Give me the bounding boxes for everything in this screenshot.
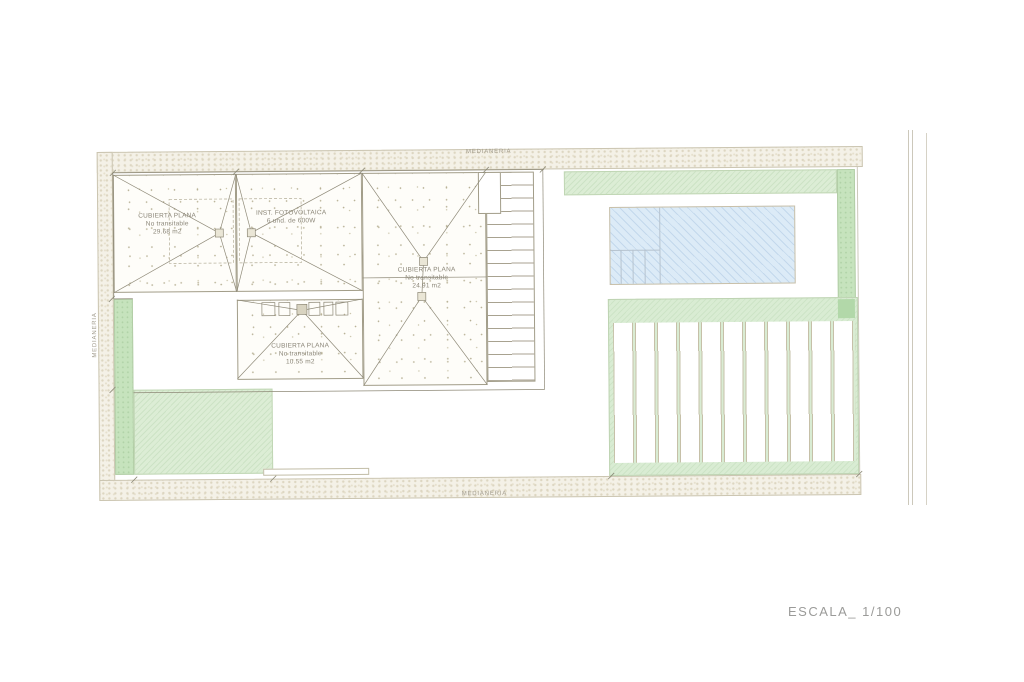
dimension-ticks xyxy=(108,164,862,483)
adjacent-plot-line xyxy=(908,130,909,505)
scale-label: ESCALA_ 1/100 xyxy=(788,604,902,619)
roof-label-c: CUBIERTA PLANA No transitable 24.91 m2 xyxy=(387,266,467,291)
plan-linework xyxy=(0,0,1024,682)
drawing-sheet: MEDIANERIA MEDIANERIA MEDIANERIA xyxy=(0,0,1024,682)
site-plan: MEDIANERIA MEDIANERIA MEDIANERIA xyxy=(0,0,1024,682)
roof-label-d: CUBIERTA PLANA No transitable 10.55 m2 xyxy=(260,342,340,367)
roof-label-a: CUBIERTA PLANA No transitable 29.68 m2 xyxy=(127,212,207,237)
photovoltaic-label: INST. FOTOVOLTAICA 6 und. de 600W xyxy=(251,209,331,226)
adjacent-plot-line xyxy=(912,130,913,505)
adjacent-plot-line xyxy=(926,133,927,505)
